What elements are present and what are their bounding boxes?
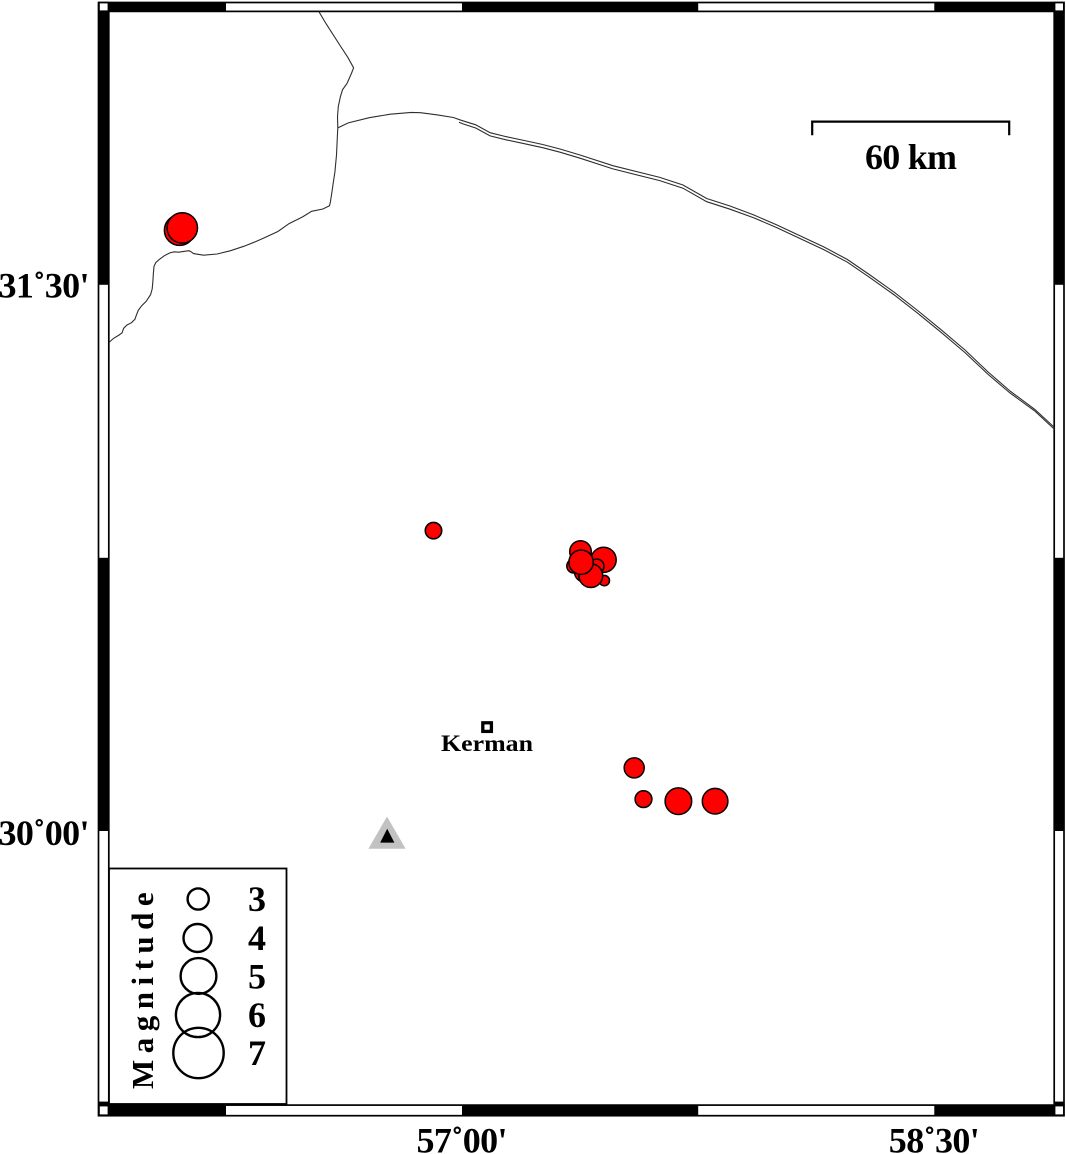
- svg-text:Kerman: Kerman: [441, 731, 533, 756]
- svg-text:57˚00': 57˚00': [417, 1121, 508, 1154]
- svg-text:31˚30': 31˚30': [0, 266, 90, 306]
- svg-text:5: 5: [248, 957, 266, 997]
- svg-text:58˚30': 58˚30': [889, 1121, 980, 1154]
- svg-text:6: 6: [248, 995, 266, 1035]
- svg-text:Magnitude: Magnitude: [125, 886, 160, 1089]
- svg-text:30˚00': 30˚00': [0, 813, 90, 853]
- svg-text:3: 3: [248, 879, 266, 919]
- svg-text:7: 7: [248, 1033, 266, 1073]
- svg-text:4: 4: [248, 918, 266, 958]
- svg-text:60 km: 60 km: [865, 137, 957, 177]
